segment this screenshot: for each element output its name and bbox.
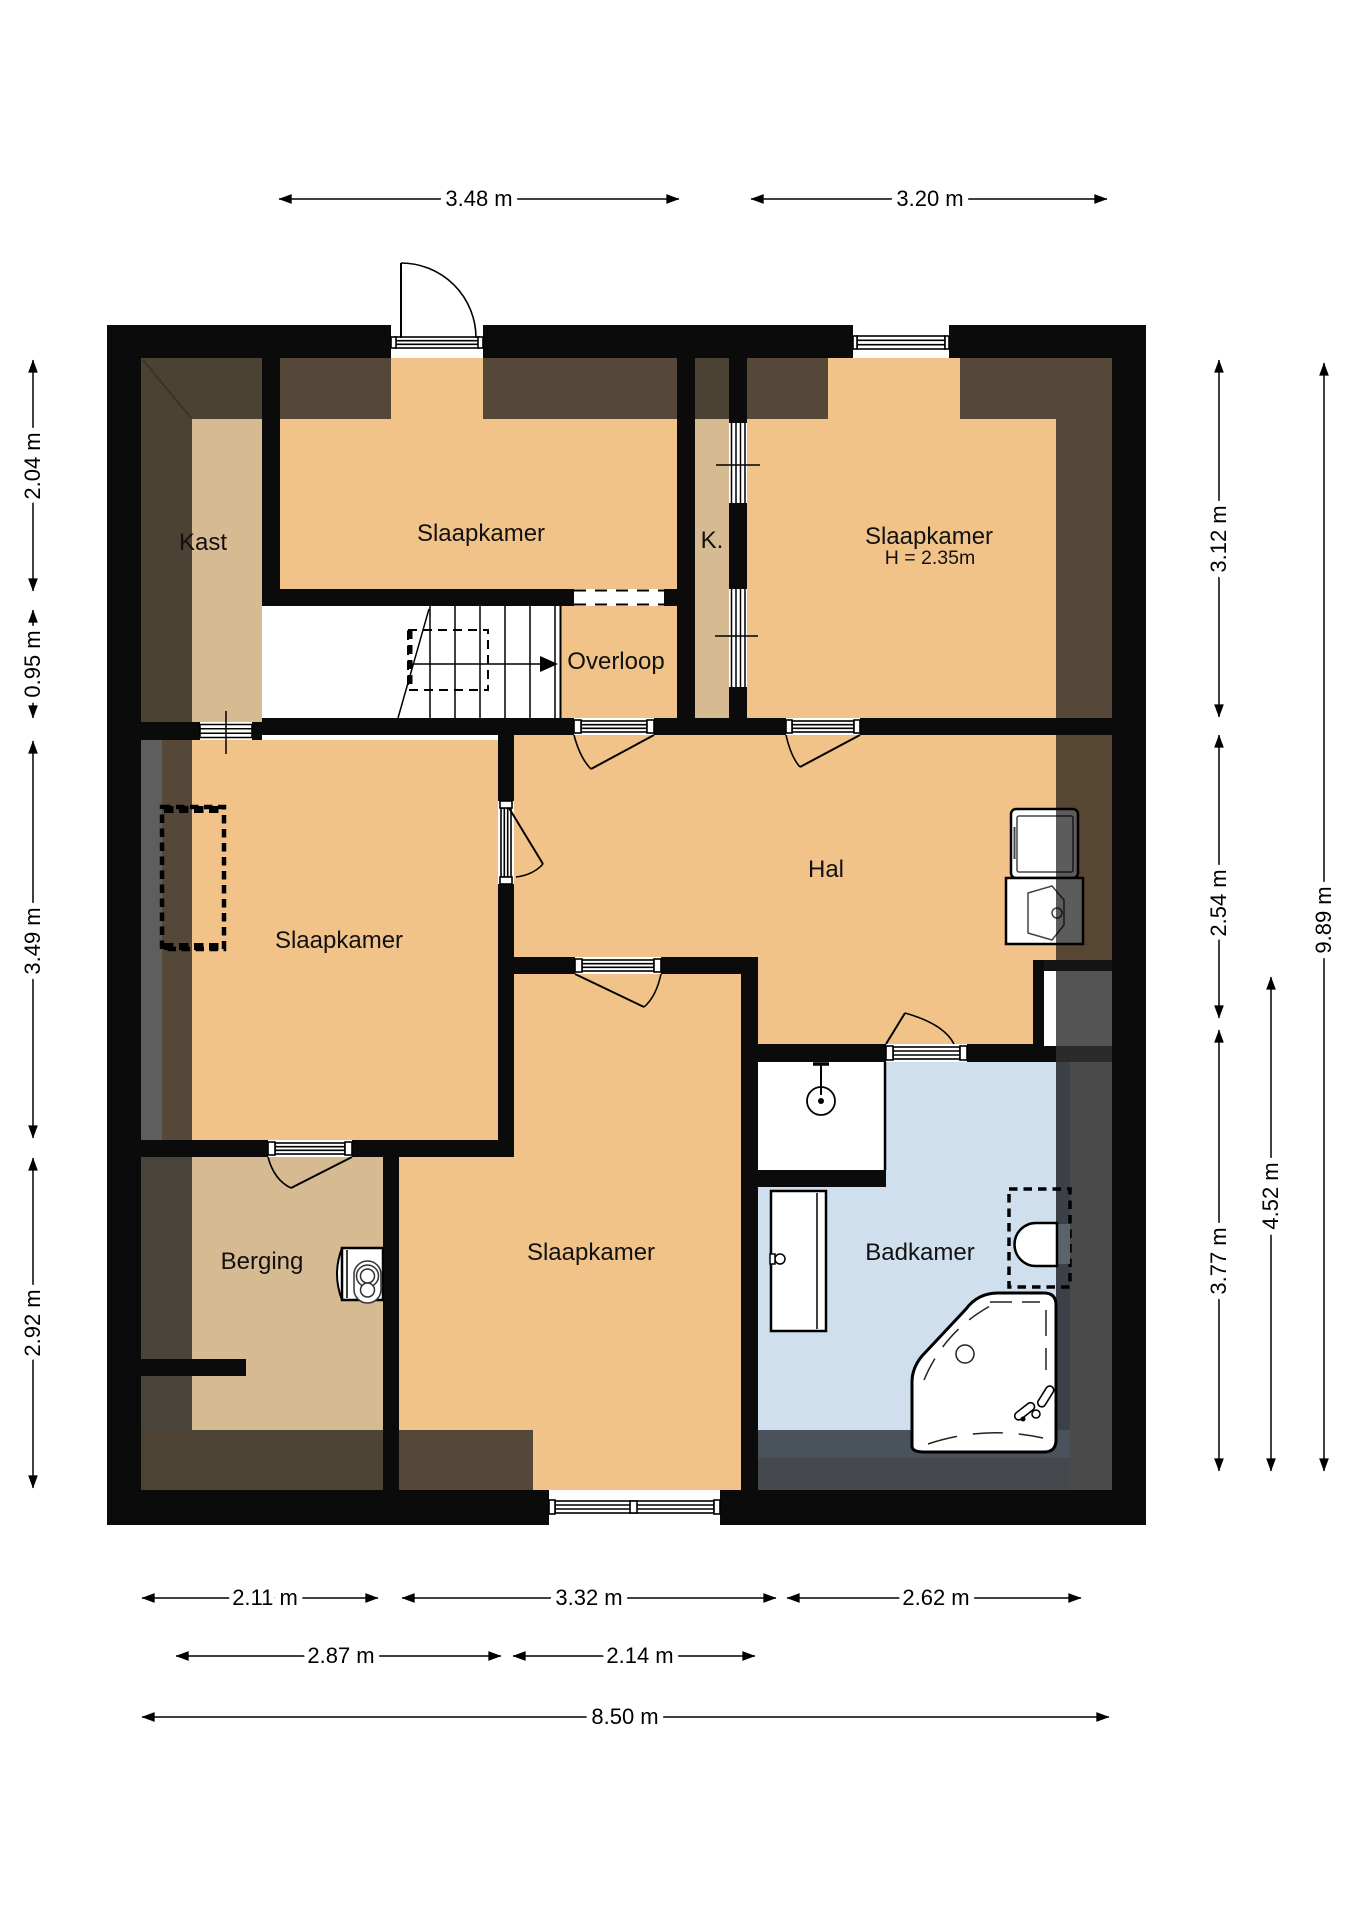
- svg-text:H = 2.35m: H = 2.35m: [885, 547, 976, 569]
- svg-text:2.54 m: 2.54 m: [1206, 869, 1231, 936]
- svg-text:Slaapkamer: Slaapkamer: [417, 520, 545, 547]
- svg-text:Kast: Kast: [179, 529, 227, 556]
- svg-text:2.14 m: 2.14 m: [606, 1643, 673, 1668]
- svg-text:Slaapkamer: Slaapkamer: [275, 927, 403, 954]
- svg-text:Slaapkamer: Slaapkamer: [527, 1239, 655, 1266]
- svg-text:0.95 m: 0.95 m: [20, 630, 45, 697]
- svg-text:9.89 m: 9.89 m: [1311, 886, 1336, 953]
- svg-text:Overloop: Overloop: [567, 648, 664, 675]
- svg-text:3.77 m: 3.77 m: [1206, 1227, 1231, 1294]
- svg-text:3.20 m: 3.20 m: [896, 186, 963, 211]
- svg-text:Slaapkamer: Slaapkamer: [865, 523, 993, 550]
- svg-text:2.92 m: 2.92 m: [20, 1289, 45, 1356]
- svg-text:Badkamer: Badkamer: [865, 1239, 974, 1266]
- svg-text:Hal: Hal: [808, 856, 844, 883]
- svg-text:2.87 m: 2.87 m: [307, 1643, 374, 1668]
- svg-text:3.49 m: 3.49 m: [20, 907, 45, 974]
- svg-text:3.12 m: 3.12 m: [1206, 505, 1231, 572]
- svg-text:4.52 m: 4.52 m: [1258, 1162, 1283, 1229]
- svg-text:2.62 m: 2.62 m: [902, 1585, 969, 1610]
- svg-text:2.04 m: 2.04 m: [20, 432, 45, 499]
- svg-text:3.32 m: 3.32 m: [555, 1585, 622, 1610]
- svg-text:3.48 m: 3.48 m: [445, 186, 512, 211]
- svg-text:K.: K.: [701, 527, 724, 554]
- svg-text:Berging: Berging: [221, 1248, 304, 1275]
- svg-text:2.11 m: 2.11 m: [232, 1585, 298, 1610]
- svg-text:8.50 m: 8.50 m: [591, 1704, 658, 1729]
